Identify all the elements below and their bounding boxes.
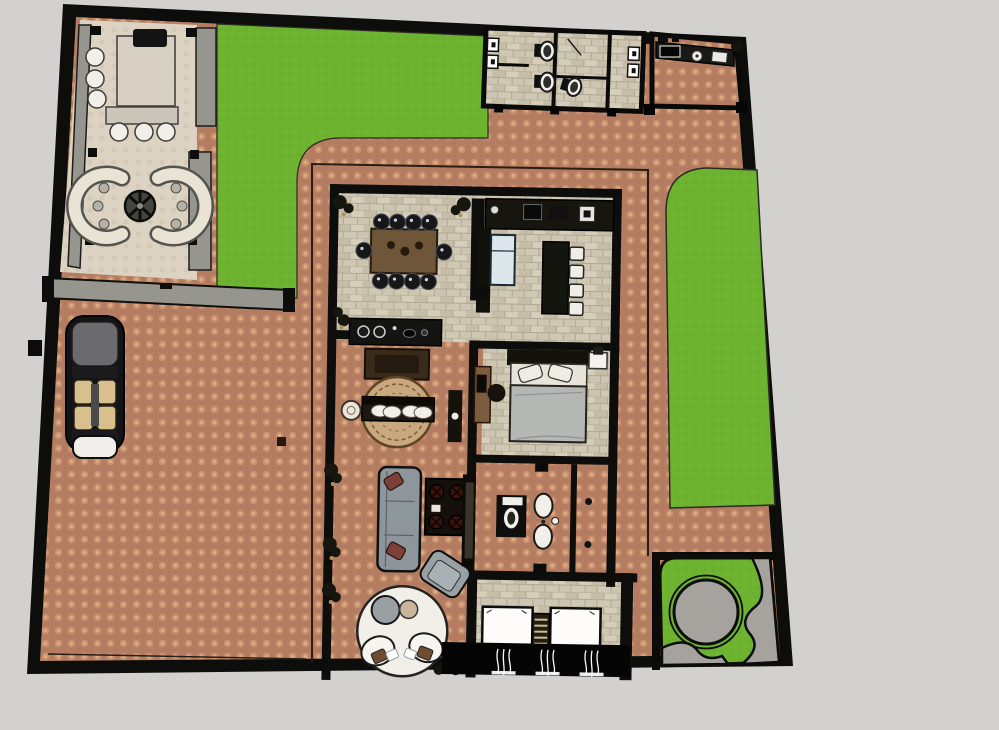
faucet [552,517,559,524]
side-lawn [666,168,775,508]
patio-right-wall-upper [196,28,216,126]
wall-stub [28,340,42,356]
car [66,316,124,458]
counter-item [658,35,668,42]
car-windshield [72,366,118,378]
appliance [548,206,568,220]
hall-bench-back [362,397,434,406]
floor-plan-canvas [0,0,999,730]
pan [403,329,415,337]
pillar [736,102,747,113]
door-post [533,564,546,574]
cooktop [523,204,541,219]
hall-side-table-round [341,401,360,420]
corner-garden [652,552,779,670]
house [320,184,644,685]
patio-post [90,26,101,35]
door-post [535,462,548,472]
fire-pit [125,190,155,222]
fridge [490,235,515,285]
nook-table-gray [371,596,399,624]
floor-plan-stage [0,0,999,730]
burner [358,326,369,337]
pillar [644,104,655,115]
outdoor-sink-drain [696,55,699,58]
vanity-sink [534,494,552,518]
car-hood [72,322,118,366]
toilet-tank [502,497,522,505]
car-console [91,384,99,426]
hall-side-table-top [375,355,419,374]
car-trunk [73,436,117,458]
restrooms-floor [483,28,644,111]
hob-center [584,210,591,217]
courtyard-drain [277,437,286,446]
trash-bin [476,287,488,299]
patio-table-item [133,29,167,47]
island [542,242,569,314]
outdoor-kitchen [644,34,747,115]
burner [374,326,385,337]
patio-table-shelf [106,107,178,124]
patio-post [190,150,199,159]
patio-area [60,20,216,280]
counter-item [672,36,679,42]
nightstand [589,352,607,368]
vanity-sink [534,525,552,549]
cutting-board [712,51,728,63]
nook-table-beige [400,600,418,618]
kitchen-sink [491,206,499,214]
tall-cabinet [476,229,491,313]
desk-item [476,375,486,393]
nightstand-item [593,347,603,355]
tv-screen [465,482,474,558]
patio-post [186,28,197,37]
patio-post [88,148,97,157]
garden-wall-left [652,552,660,670]
potted-plant [731,40,736,45]
grill [660,46,680,57]
knob [421,330,427,336]
table-tray [431,505,440,512]
garden-plaza [674,580,738,644]
restrooms [483,28,644,117]
